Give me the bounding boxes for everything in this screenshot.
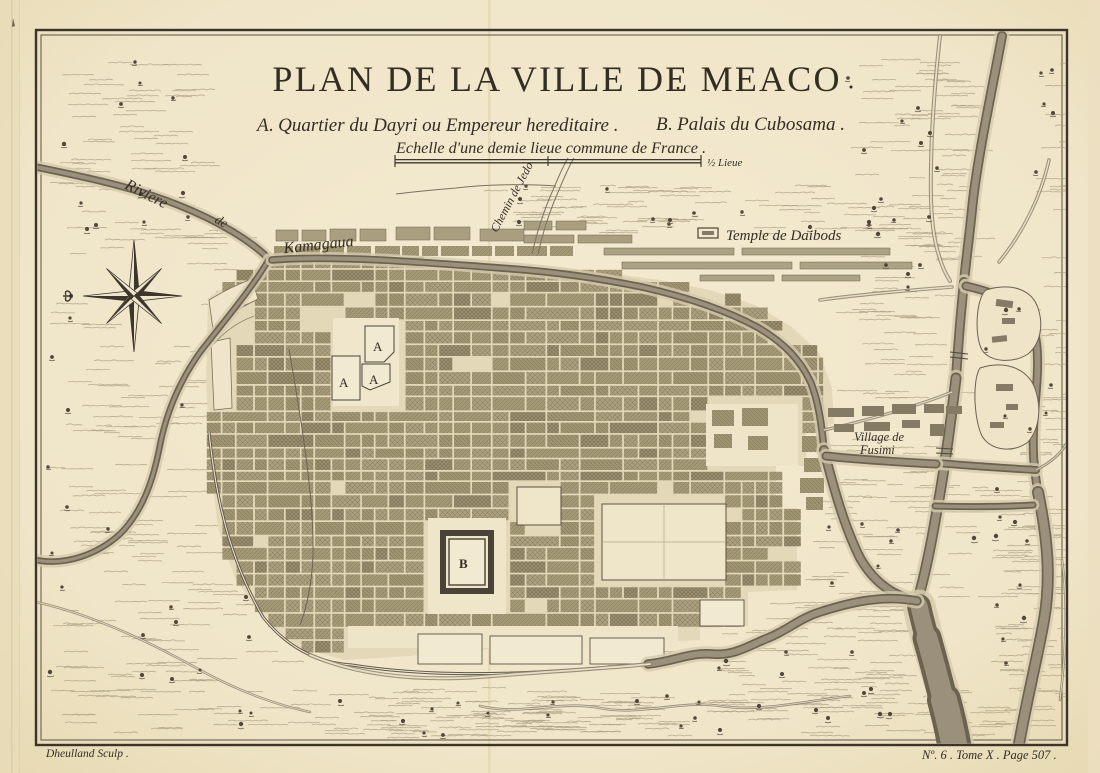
svg-text:Village de: Village de: [854, 430, 905, 444]
svg-text:Fusimi: Fusimi: [859, 443, 895, 457]
svg-text:A: A: [339, 375, 349, 390]
svg-text:B: B: [459, 556, 468, 571]
svg-text:½ Lieue: ½ Lieue: [707, 157, 743, 169]
svg-text:Nº. 6 . Tome X . Page 507 .: Nº. 6 . Tome X . Page 507 .: [921, 748, 1057, 762]
svg-text:A: A: [373, 339, 383, 354]
svg-text:Temple de Daibods: Temple de Daibods: [726, 228, 841, 244]
svg-text:A. Quartier du Dayri ou Empere: A. Quartier du Dayri ou Empereur heredit…: [255, 115, 618, 136]
svg-text:Echelle d'une demie lieue comm: Echelle d'une demie lieue commune de Fra…: [395, 139, 706, 157]
svg-text:PLAN DE LA VILLE DE MEACO: PLAN DE LA VILLE DE MEACO: [272, 59, 841, 99]
svg-text:Dheulland Sculp .: Dheulland Sculp .: [45, 748, 129, 760]
svg-text:A: A: [369, 372, 379, 387]
svg-text:B. Palais du Cubosama .: B. Palais du Cubosama .: [656, 114, 845, 135]
